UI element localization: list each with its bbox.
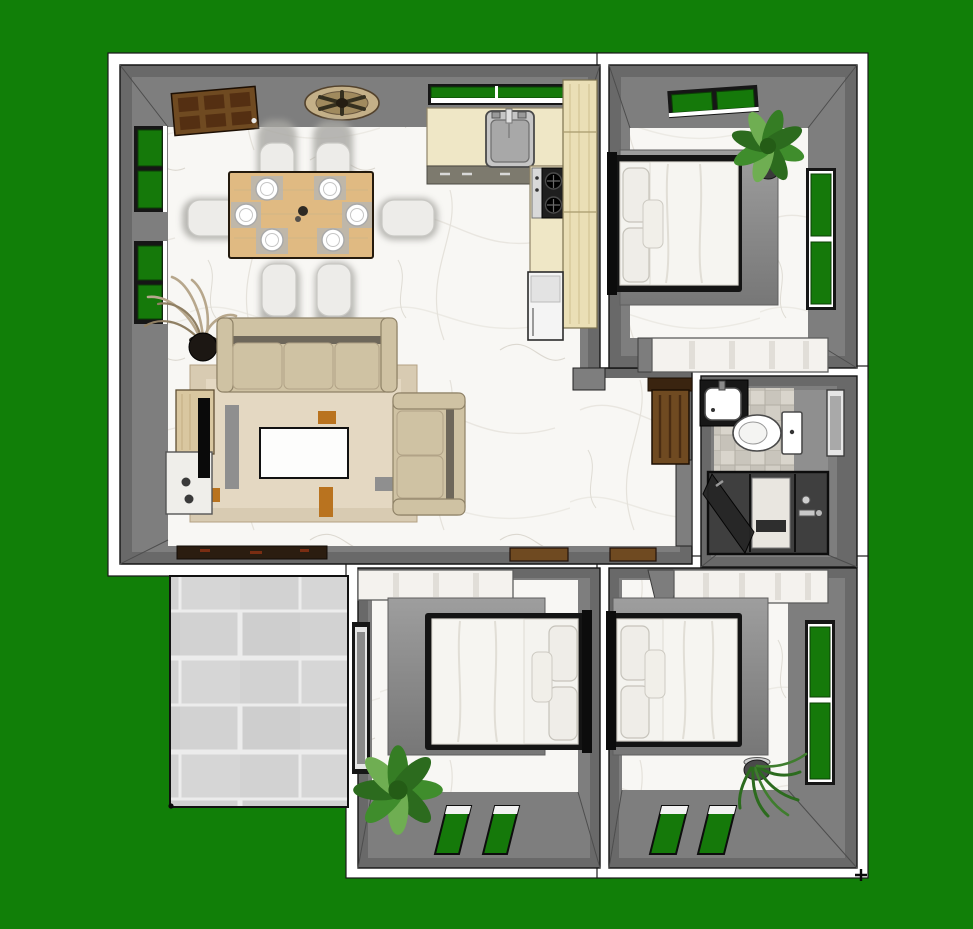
- tv: [198, 398, 210, 478]
- pillow: [549, 687, 577, 740]
- shower-marble-panel: [752, 478, 790, 548]
- flush-button: [790, 430, 794, 434]
- cushion: [645, 650, 665, 698]
- floor-plan-canvas: [0, 0, 973, 929]
- duvet: [432, 619, 524, 744]
- ceiling-fan: [305, 86, 379, 120]
- headboard: [582, 610, 592, 753]
- pantry-cabinet: [563, 80, 597, 328]
- bathroom-door: [648, 378, 692, 464]
- toilet: [733, 412, 802, 454]
- patio-corner-marker: [168, 803, 173, 808]
- sofa-arm: [381, 318, 397, 392]
- cushion: [643, 200, 663, 248]
- patio-tiles: [170, 576, 348, 807]
- loveseat-cushion: [397, 411, 443, 455]
- right-wall-window: [806, 168, 836, 310]
- dining-chair: [382, 200, 434, 236]
- doormat: [177, 546, 327, 559]
- patio: [168, 576, 348, 809]
- dining-table: [229, 172, 373, 258]
- headboard: [606, 611, 616, 750]
- bedroom2-bed: [425, 610, 592, 753]
- dining-chair: [317, 264, 351, 316]
- door-threshold: [510, 548, 568, 561]
- stub-wall: [573, 368, 605, 390]
- shower-fixture: [799, 510, 815, 516]
- sofa-arm: [217, 318, 233, 392]
- sink-handle: [492, 112, 500, 118]
- three-seat-sofa: [217, 318, 397, 392]
- sofa-cushion: [284, 343, 333, 389]
- bedroom1-bed: [607, 152, 742, 295]
- loveseat-arm: [393, 393, 465, 409]
- left-wall-window: [352, 622, 370, 774]
- door-lintel: [648, 378, 692, 391]
- faucet: [719, 381, 725, 390]
- left-wall-window-2: [134, 241, 167, 324]
- pillow: [549, 626, 577, 681]
- coffee-table: [260, 428, 348, 478]
- floor-plan-3d-render: [0, 0, 973, 929]
- right-wall-window: [805, 620, 835, 785]
- refrigerator: [528, 272, 563, 340]
- cabinet-knob: [185, 495, 194, 504]
- shower-bench: [756, 520, 786, 532]
- sofa-cushion: [233, 343, 282, 389]
- sofa-cushion: [335, 343, 379, 389]
- kitchen-sink: [486, 109, 534, 167]
- plant-pot: [189, 333, 217, 361]
- shower-valve: [802, 496, 810, 504]
- door-threshold: [610, 548, 656, 561]
- bedroom1-dresser: [638, 338, 828, 372]
- table-centerpiece: [298, 206, 308, 216]
- shower-enclosure: [703, 472, 828, 554]
- bedroom3-bed: [606, 611, 742, 750]
- duvet: [663, 619, 737, 741]
- dining-chair: [262, 264, 296, 316]
- sink-handle: [518, 112, 526, 118]
- cushion: [532, 652, 552, 702]
- kitchen-window: [428, 84, 566, 105]
- left-wall-window-1: [134, 126, 167, 212]
- wall-segment: [676, 460, 692, 546]
- cabinet-knob: [182, 478, 191, 487]
- stove: [532, 168, 565, 218]
- wall-mirror: [827, 390, 844, 456]
- bedroom2-plant: [353, 745, 443, 835]
- bedroom2-closet: [358, 570, 513, 600]
- headboard: [607, 152, 617, 295]
- loveseat-cushion: [397, 456, 443, 498]
- entry-door: [171, 86, 258, 135]
- loveseat-arm: [393, 499, 465, 515]
- loveseat: [393, 393, 465, 515]
- faucet: [506, 109, 512, 123]
